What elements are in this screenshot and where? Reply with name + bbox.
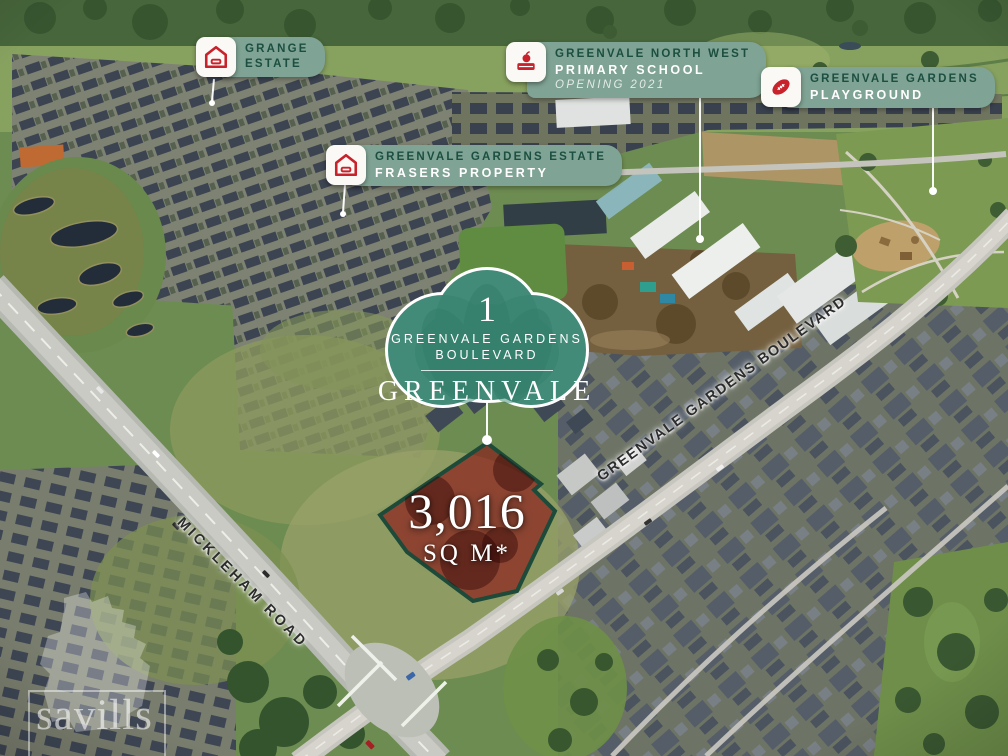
callout-line: GREENVALE NORTH WEST bbox=[555, 47, 750, 62]
address-badge: 1 GREENVALE GARDENS BOULEVARD GREENVALE bbox=[372, 291, 602, 408]
callout-line: OPENING 2021 bbox=[555, 78, 750, 93]
lot-area-unit: SQ M* bbox=[408, 540, 526, 568]
callout-playground: GREENVALE GARDENS PLAYGROUND bbox=[761, 67, 995, 108]
callout-line: PLAYGROUND bbox=[810, 87, 979, 103]
callout-grange-estate: GRANGE ESTATE bbox=[196, 37, 325, 77]
street-name-line2: BOULEVARD bbox=[372, 347, 602, 363]
callout-line: GRANGE bbox=[245, 42, 309, 57]
callout-frasers-estate: GREENVALE GARDENS ESTATE FRASERS PROPERT… bbox=[326, 145, 622, 186]
callout-plaque: GREENVALE NORTH WEST PRIMARY SCHOOL OPEN… bbox=[527, 42, 766, 98]
callout-line: GREENVALE GARDENS bbox=[810, 72, 979, 87]
house-icon bbox=[196, 37, 236, 77]
watermark-brand: savills bbox=[36, 692, 153, 739]
street-number: 1 bbox=[372, 291, 602, 327]
house-icon bbox=[326, 145, 366, 185]
callout-line: GREENVALE GARDENS ESTATE bbox=[375, 150, 606, 165]
lot-area-value: 3,016 bbox=[408, 486, 526, 536]
suburb-name: GREENVALE bbox=[372, 376, 602, 408]
football-icon bbox=[761, 67, 801, 107]
callout-plaque: GREENVALE GARDENS PLAYGROUND bbox=[782, 67, 995, 108]
badge-divider bbox=[421, 370, 553, 371]
aerial-marketing-image: GRANGE ESTATE GREENVALE NORTH WEST PRIMA… bbox=[0, 0, 1008, 756]
callout-plaque: GREENVALE GARDENS ESTATE FRASERS PROPERT… bbox=[347, 145, 622, 186]
callout-line: ESTATE bbox=[245, 57, 309, 72]
lot-area-label: 3,016 SQ M* bbox=[408, 486, 526, 568]
callout-line: PRIMARY SCHOOL bbox=[555, 62, 750, 78]
callout-primary-school: GREENVALE NORTH WEST PRIMARY SCHOOL OPEN… bbox=[506, 42, 766, 98]
street-name-line1: GREENVALE GARDENS bbox=[372, 331, 602, 347]
callout-line: FRASERS PROPERTY bbox=[375, 165, 606, 181]
school-book-apple-icon bbox=[506, 42, 546, 82]
